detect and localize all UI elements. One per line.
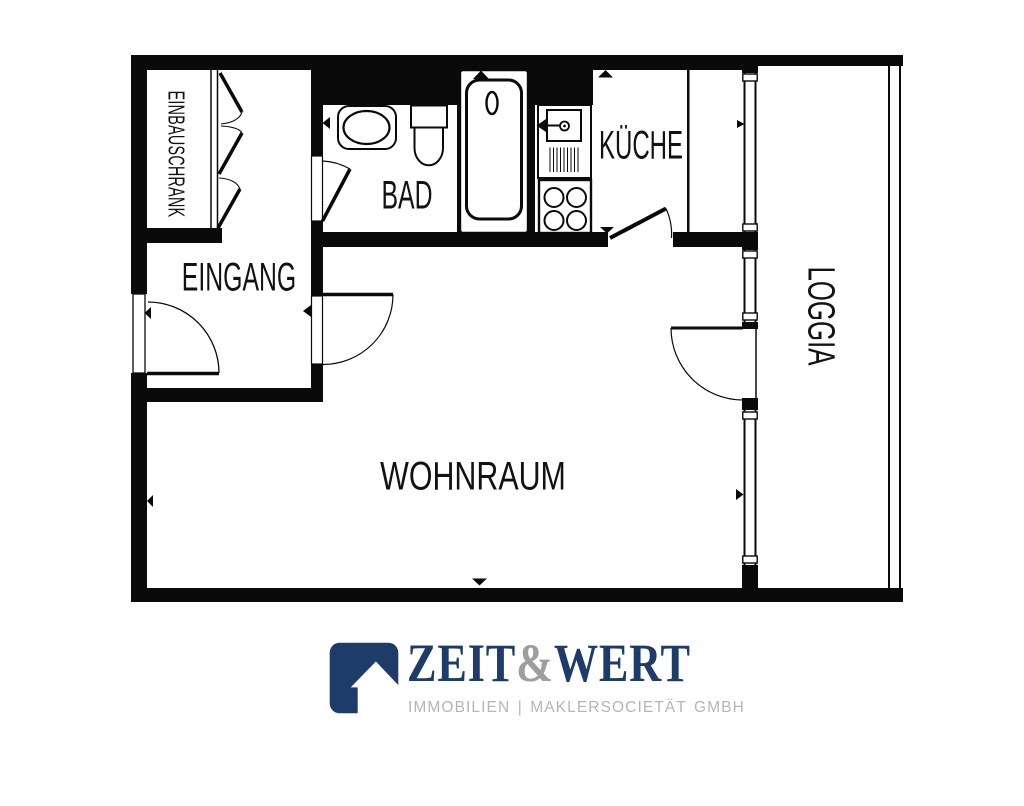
room-label-einbauschrank: EINBAUSCHRANK [163,91,190,218]
room-label-eingang: EINGANG [182,256,296,301]
floorplan-page: EINBAUSCHRANK BAD KÜCHE EINGANG WOHNRAUM… [0,0,1024,806]
room-label-bad: BAD [382,174,433,219]
kitchen-sink-icon [537,105,592,178]
toilet-icon [411,106,447,166]
loggia-window-lower-icon [743,410,757,565]
living-room-door-swing-icon [312,295,394,365]
company-name: ZEIT&WERT [407,636,691,690]
loggia-open-rail [889,64,900,590]
room-label-loggia: LOGGIA [799,266,842,365]
room-label-wohnraum: WOHNRAUM [380,455,566,500]
company-tagline: IMMOBILIEN | MAKLERSOCIETÄT GMBH [408,699,745,717]
wardrobe-folding-doors-icon [211,70,242,228]
stove-icon [539,180,591,233]
company-name-wert: WERT [554,633,691,693]
entry-door-swing-icon [133,294,219,374]
bath-door-swing-icon [312,156,351,221]
house-arrow-icon [329,642,399,714]
washbasin-icon [338,106,396,149]
room-label-kueche: KÜCHE [599,124,683,169]
company-name-zeit: ZEIT [407,633,516,693]
kitchen-window-icon [743,73,757,232]
balcony-door-swing-icon [671,328,756,400]
loggia-window-upper-icon [743,250,757,322]
company-name-ampersand: & [516,633,554,693]
bathtub-icon [460,70,528,233]
kitchen-door-swing-icon [610,209,672,239]
